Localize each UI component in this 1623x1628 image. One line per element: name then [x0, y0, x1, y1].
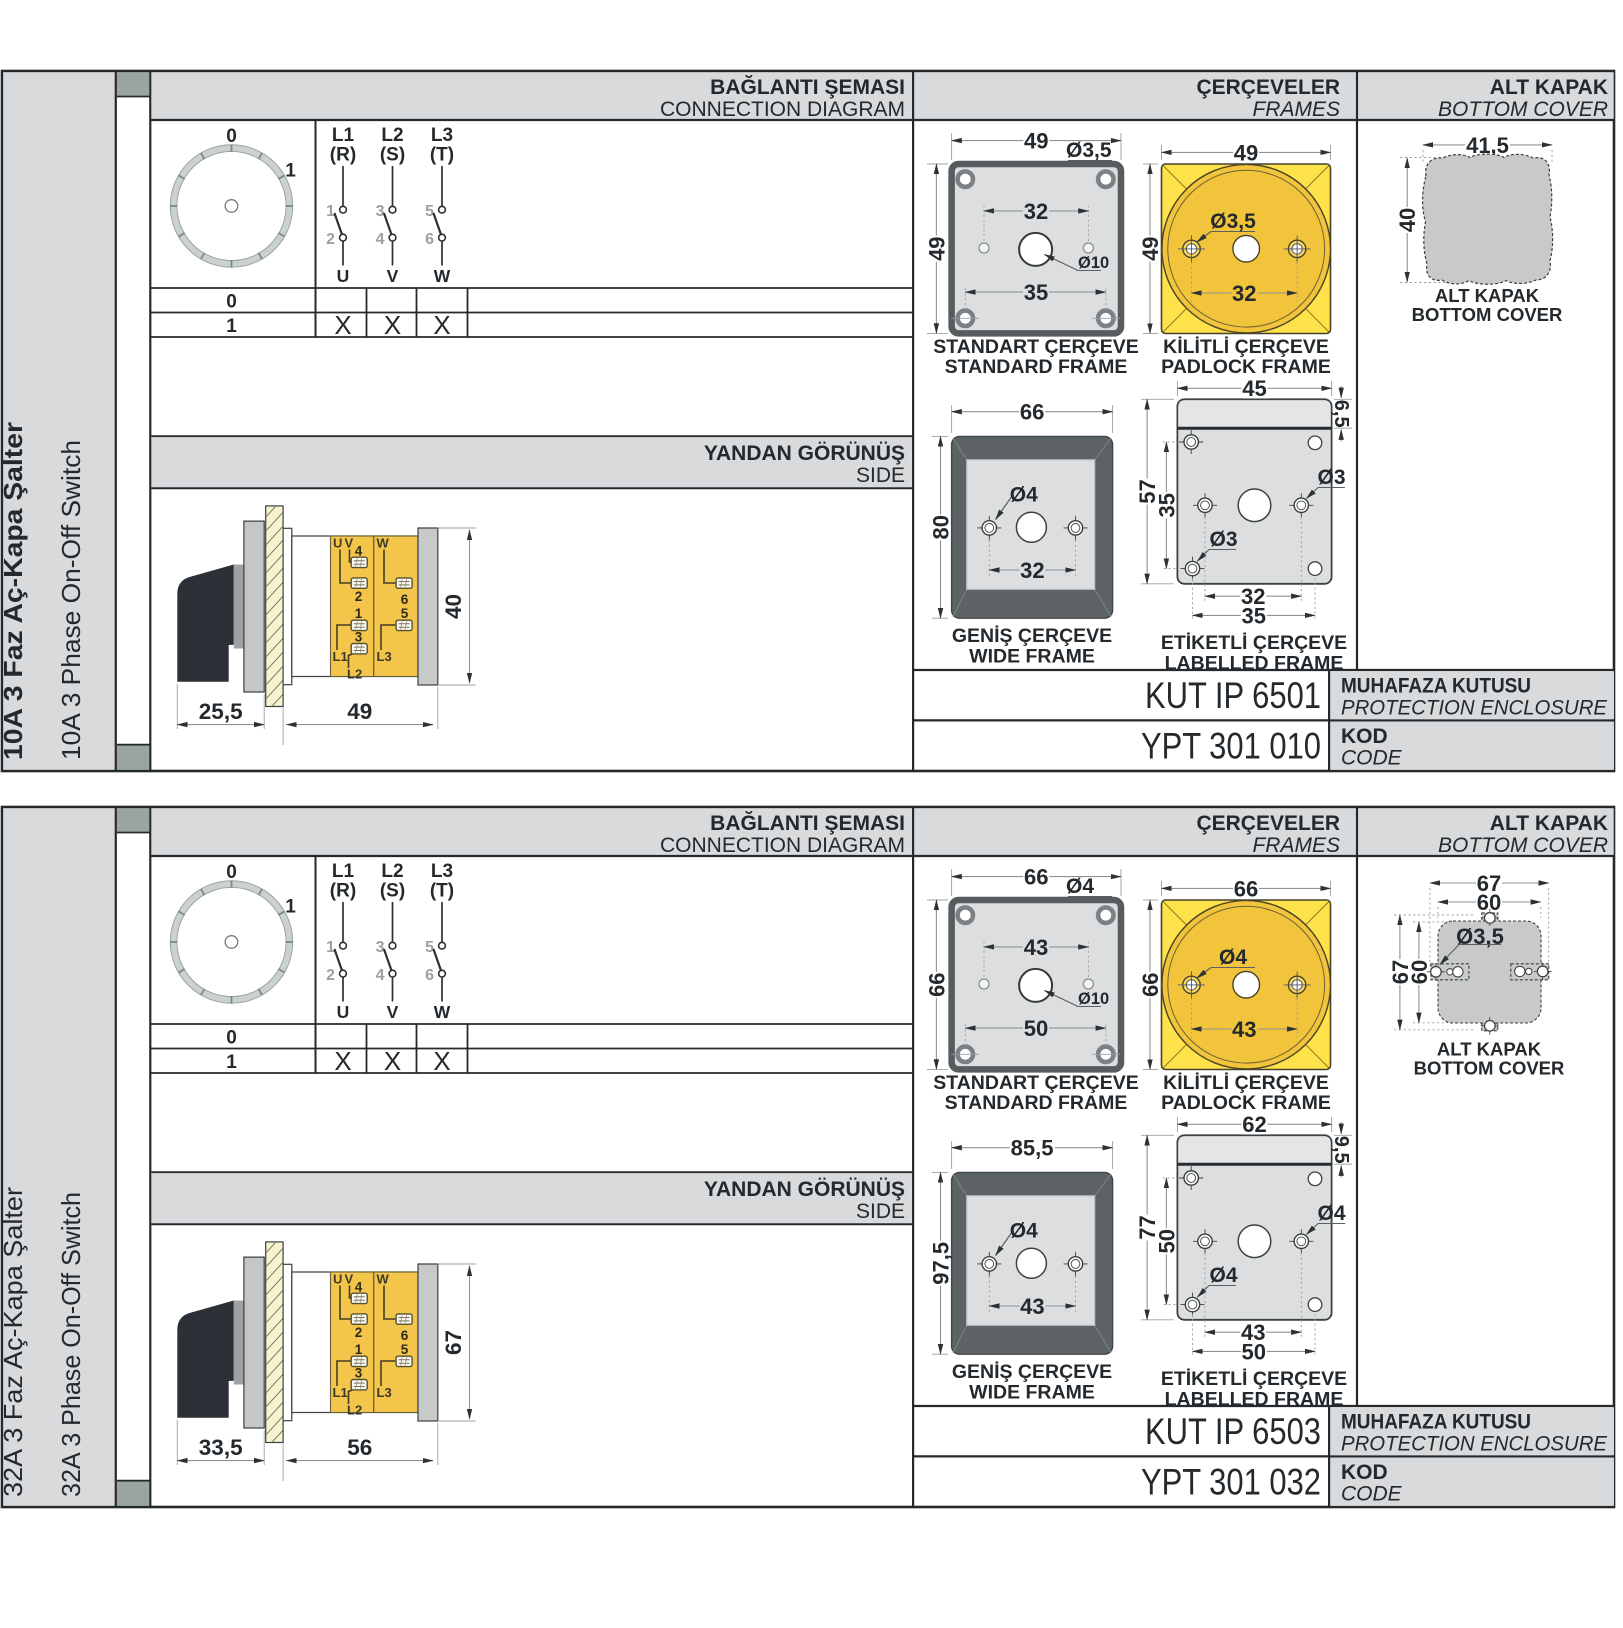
svg-text:49: 49 — [924, 236, 949, 260]
svg-text:Ø3,5: Ø3,5 — [1066, 139, 1112, 162]
svg-text:10A 3 Faz Aç-Kapa Şalter: 10A 3 Faz Aç-Kapa Şalter — [0, 422, 28, 760]
svg-text:35: 35 — [1024, 280, 1048, 305]
svg-text:ALT KAPAK: ALT KAPAK — [1435, 285, 1540, 306]
svg-text:25,5: 25,5 — [199, 699, 243, 724]
svg-text:Ø3: Ø3 — [1317, 466, 1345, 489]
svg-text:BOTTOM COVER: BOTTOM COVER — [1414, 1058, 1565, 1079]
svg-text:50: 50 — [1024, 1016, 1048, 1041]
svg-text:33,5: 33,5 — [199, 1435, 243, 1460]
svg-text:43: 43 — [1024, 935, 1048, 960]
svg-text:Ø3: Ø3 — [1209, 528, 1237, 551]
svg-text:Ø4: Ø4 — [1010, 484, 1038, 507]
svg-text:85,5: 85,5 — [1011, 1136, 1054, 1161]
svg-text:35: 35 — [1154, 493, 1179, 517]
svg-text:35: 35 — [1242, 603, 1266, 628]
svg-text:KUT IP 6503: KUT IP 6503 — [1145, 1411, 1321, 1452]
svg-text:66: 66 — [924, 972, 949, 996]
svg-text:50: 50 — [1154, 1229, 1179, 1253]
svg-text:49: 49 — [1234, 140, 1258, 165]
svg-text:43: 43 — [1232, 1017, 1256, 1042]
svg-text:BOTTOM COVER: BOTTOM COVER — [1412, 304, 1563, 325]
svg-text:32A 3 Faz Aç-Kapa Şalter: 32A 3 Faz Aç-Kapa Şalter — [0, 1187, 28, 1497]
svg-text:80: 80 — [928, 515, 953, 539]
svg-text:10A 3 Phase On-Off Switch: 10A 3 Phase On-Off Switch — [56, 440, 86, 760]
svg-text:43: 43 — [1020, 1294, 1044, 1319]
svg-text:YPT 301 010: YPT 301 010 — [1141, 726, 1321, 767]
svg-text:60: 60 — [1477, 890, 1501, 915]
svg-text:Ø3,5: Ø3,5 — [1456, 924, 1504, 949]
svg-text:45: 45 — [1242, 376, 1266, 401]
svg-text:66: 66 — [1024, 865, 1048, 890]
svg-text:Ø3,5: Ø3,5 — [1210, 210, 1256, 233]
svg-text:Ø4: Ø4 — [1010, 1220, 1038, 1243]
svg-text:Ø4: Ø4 — [1317, 1202, 1345, 1225]
svg-text:32: 32 — [1020, 558, 1044, 583]
svg-text:Ø10: Ø10 — [1078, 990, 1109, 1008]
svg-text:56: 56 — [347, 1435, 372, 1460]
svg-text:32: 32 — [1024, 199, 1048, 224]
svg-text:66: 66 — [1234, 876, 1258, 901]
svg-text:Ø4: Ø4 — [1219, 946, 1247, 969]
svg-text:66: 66 — [1138, 972, 1163, 996]
svg-text:6,5: 6,5 — [1330, 400, 1352, 428]
svg-text:49: 49 — [1024, 129, 1048, 154]
svg-text:32: 32 — [1232, 281, 1256, 306]
svg-text:ALT KAPAK: ALT KAPAK — [1437, 1039, 1542, 1060]
svg-text:67: 67 — [441, 1330, 466, 1355]
svg-text:97,5: 97,5 — [928, 1242, 953, 1285]
svg-text:62: 62 — [1242, 1112, 1266, 1137]
svg-text:50: 50 — [1242, 1339, 1266, 1364]
svg-text:YPT 301 032: YPT 301 032 — [1141, 1462, 1321, 1503]
svg-text:Ø4: Ø4 — [1209, 1264, 1237, 1287]
svg-text:66: 66 — [1020, 400, 1044, 425]
svg-text:40: 40 — [1395, 208, 1420, 232]
svg-text:40: 40 — [441, 594, 466, 619]
svg-text:Ø4: Ø4 — [1066, 875, 1094, 898]
svg-text:KUT IP 6501: KUT IP 6501 — [1145, 675, 1321, 716]
svg-text:32A 3 Phase On-Off Switch: 32A 3 Phase On-Off Switch — [56, 1192, 86, 1497]
svg-text:9,5: 9,5 — [1330, 1136, 1352, 1164]
svg-text:Ø10: Ø10 — [1078, 254, 1109, 272]
svg-text:49: 49 — [347, 699, 372, 724]
svg-text:49: 49 — [1138, 236, 1163, 260]
